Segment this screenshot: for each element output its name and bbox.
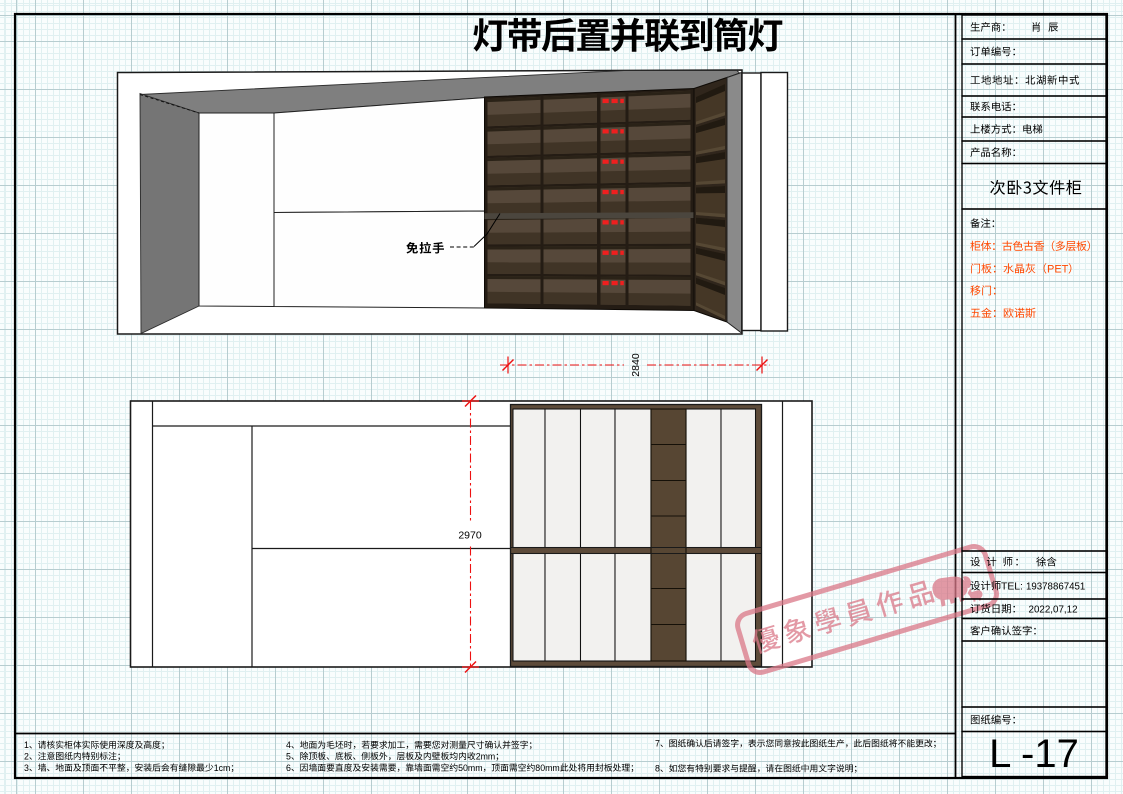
svg-text:5: 5 (286, 751, 291, 761)
svg-text:3: 3 (24, 763, 29, 773)
svg-text:1cm: 1cm (214, 763, 231, 773)
svg-text:6: 6 (286, 763, 291, 773)
svg-text:2mm: 2mm (476, 751, 496, 761)
svg-text:L -17: L -17 (989, 732, 1079, 776)
svg-text:50mm: 50mm (458, 763, 482, 773)
svg-text:1: 1 (24, 740, 29, 750)
svg-text:8: 8 (655, 764, 660, 774)
svg-text:4: 4 (286, 740, 291, 750)
svg-text:PET: PET (1047, 264, 1069, 276)
svg-text:2970: 2970 (458, 530, 482, 542)
svg-text:7: 7 (655, 739, 660, 749)
svg-text:19378867451: 19378867451 (1026, 582, 1085, 593)
svg-text:2: 2 (24, 751, 29, 761)
svg-text:TEL:: TEL: (1001, 582, 1023, 593)
svg-text:2022,07,12: 2022,07,12 (1029, 605, 1078, 616)
svg-text:2840: 2840 (630, 353, 642, 377)
svg-text:80mm: 80mm (535, 763, 559, 773)
